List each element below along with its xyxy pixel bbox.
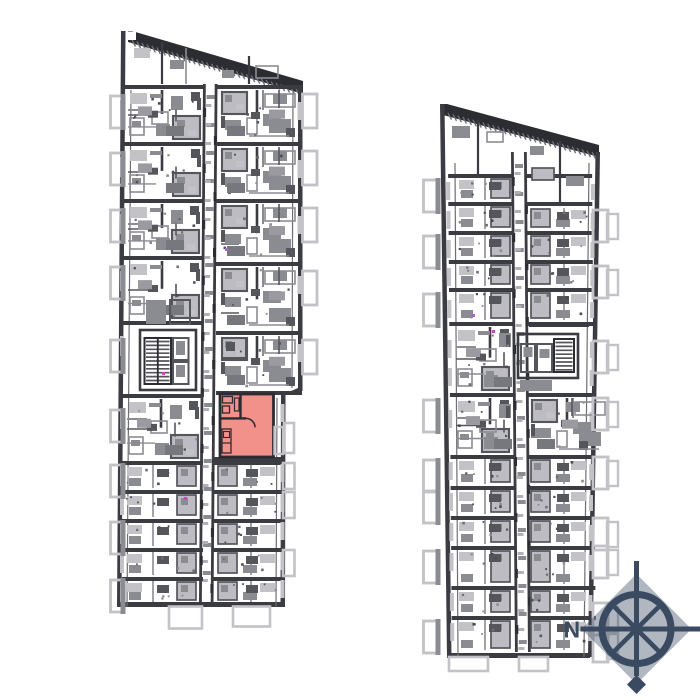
svg-text:N: N [564,617,581,643]
